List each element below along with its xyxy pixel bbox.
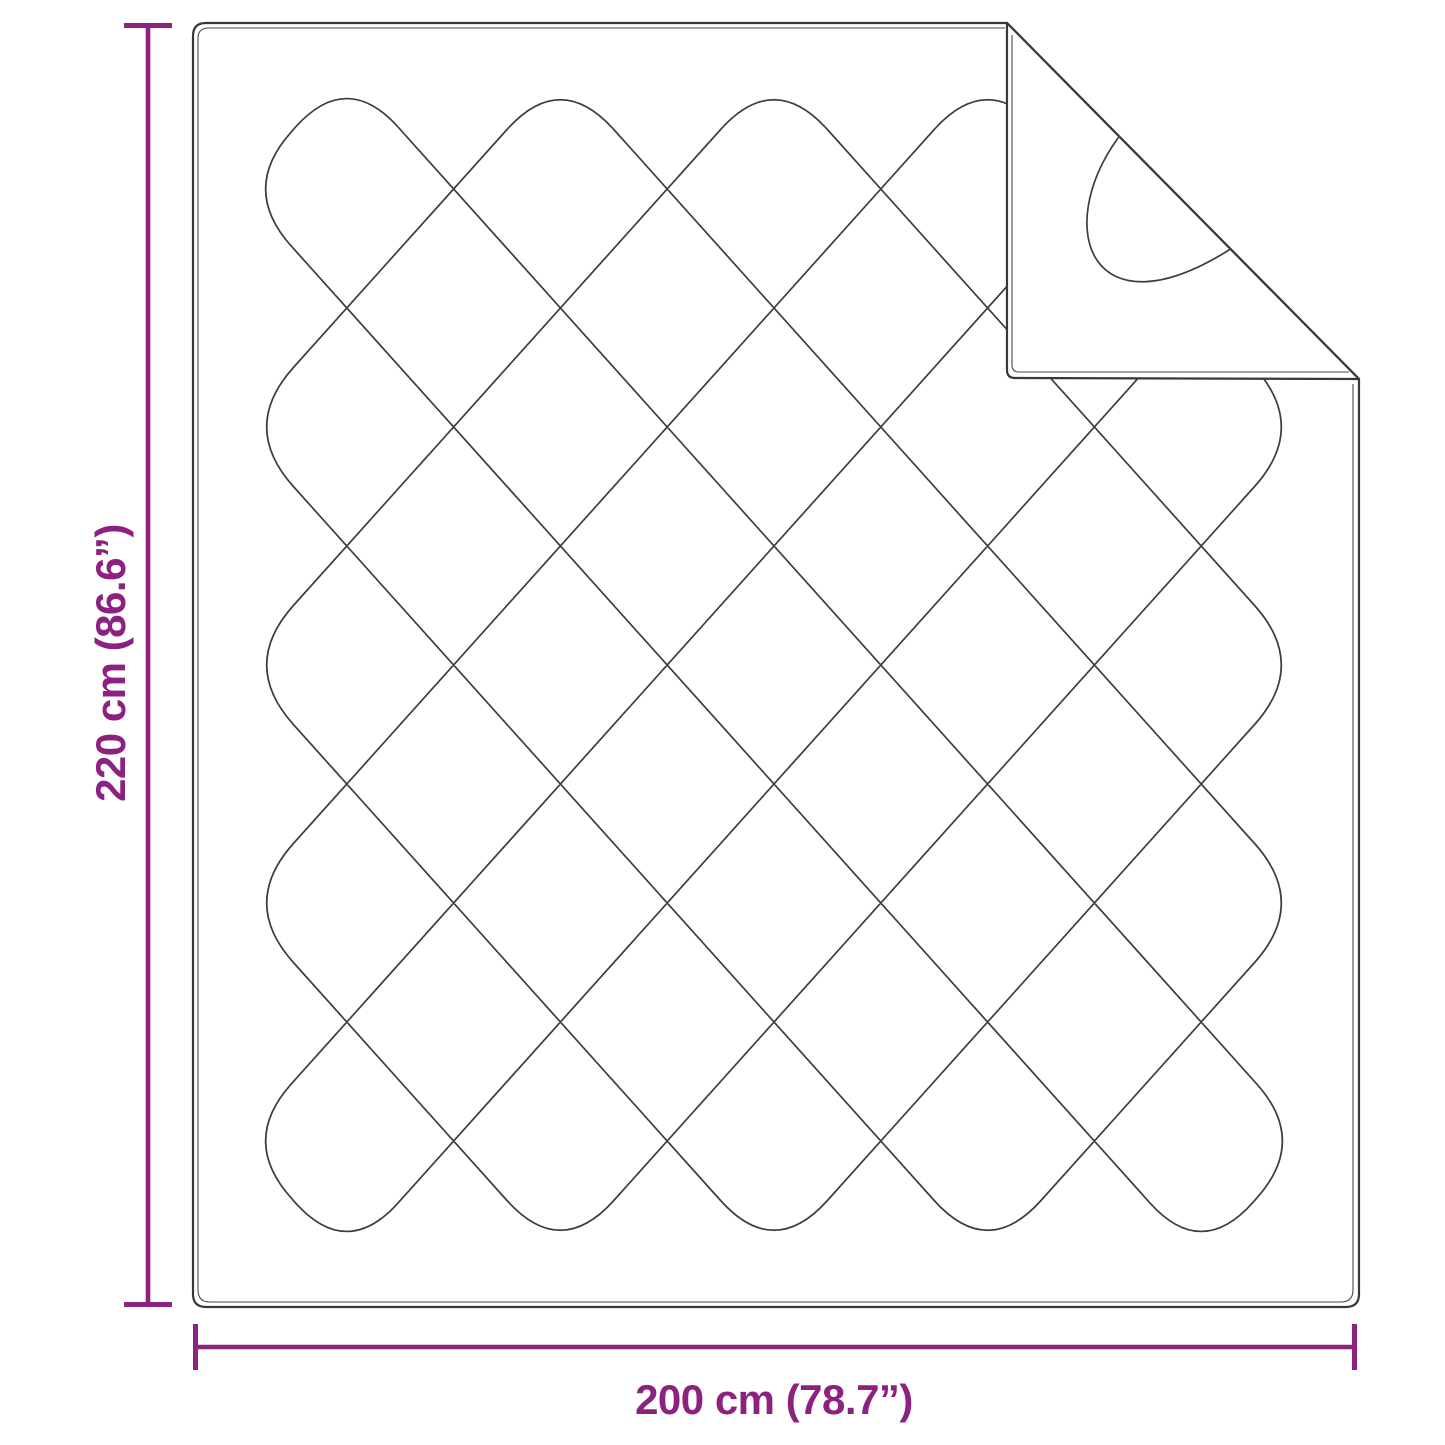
height-dimension-label: 220 cm (86.6”) [87, 524, 135, 802]
width-dimension-label: 200 cm (78.7”) [193, 1376, 1355, 1424]
blanket-fold-flap [1007, 23, 1359, 379]
diagram-stage: 220 cm (86.6”) 200 cm (78.7”) [0, 0, 1445, 1445]
blanket-diagram [0, 0, 1445, 1445]
width-dimension [195, 1324, 1355, 1370]
